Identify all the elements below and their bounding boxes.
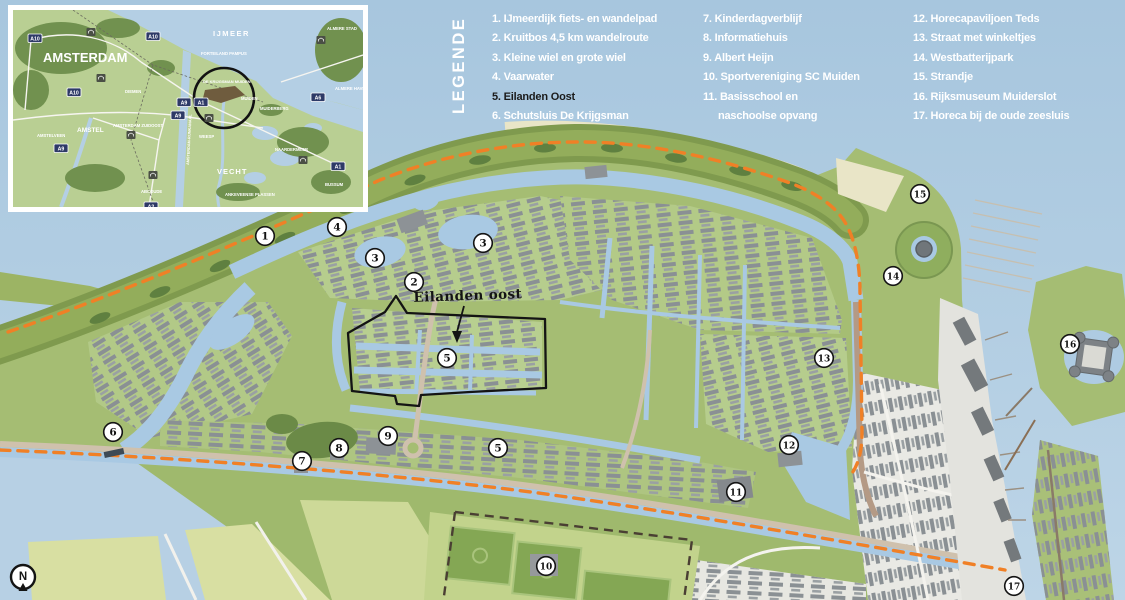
- legend-item-16: 16. Rijksmuseum Muiderslot: [913, 88, 1069, 107]
- fort-icon: [317, 36, 326, 44]
- inset-place-label: IJMEER: [213, 29, 250, 38]
- marker-number: 5: [443, 353, 450, 365]
- legend-item-4: 4. Vaarwater: [492, 68, 657, 87]
- map-marker-17[interactable]: 17: [1005, 577, 1024, 596]
- map-marker-1[interactable]: 1: [256, 227, 275, 246]
- map-marker-15[interactable]: 15: [911, 185, 930, 204]
- inset-map: A10A10A10A9A9A2A1A6A9A1 AMSTERDAMIJMEERV…: [8, 5, 368, 212]
- fort-icon: [97, 74, 106, 82]
- marker-number: 6: [109, 427, 116, 439]
- inset-place-label: DE KRIJGSMAN MUIDEN: [203, 79, 251, 84]
- inset-place-label: AMSTERDAM ZUIDOOST: [113, 123, 163, 128]
- fort-icon: [205, 114, 214, 122]
- inset-place-label: BUSSUM: [325, 182, 344, 187]
- inset-place-label: WEESP: [199, 134, 214, 139]
- map-marker-5[interactable]: 5: [489, 439, 508, 458]
- legend-item-6: 6. Schutsluis De Krijgsman: [492, 107, 657, 126]
- marker-number: 2: [410, 277, 417, 289]
- map-marker-14[interactable]: 14: [884, 267, 903, 286]
- inset-road-shield: A9: [54, 144, 68, 153]
- svg-text:A6: A6: [315, 95, 322, 101]
- map-marker-3[interactable]: 3: [366, 249, 385, 268]
- legend-item-9: 9. Albert Heijn: [703, 49, 860, 68]
- map-marker-9[interactable]: 9: [379, 427, 398, 446]
- inset-place-label: AMSTERDAM: [43, 50, 128, 65]
- marker-number: 9: [384, 431, 391, 443]
- inset-place-label: MUIDEN: [241, 96, 258, 101]
- legend-column-1: 1. IJmeerdijk fiets- en wandelpad 2. Kru…: [492, 10, 657, 126]
- legend-column-3: 12. Horecapaviljoen Teds 13. Straat met …: [913, 10, 1069, 126]
- inset-place-label: AMSTEL: [77, 127, 104, 134]
- map-marker-16[interactable]: 16: [1061, 335, 1080, 354]
- marker-number: 14: [887, 273, 900, 283]
- legend-item-8: 8. Informatiehuis: [703, 29, 860, 48]
- svg-text:A10: A10: [30, 36, 40, 42]
- map-marker-2[interactable]: 2: [405, 273, 424, 292]
- marker-number: 17: [1008, 583, 1021, 593]
- map-marker-7[interactable]: 7: [293, 452, 312, 471]
- inset-road-shield: A10: [28, 34, 42, 43]
- kruitbos: [266, 414, 298, 434]
- legend-item-14: 14. Westbatterijpark: [913, 49, 1069, 68]
- legend-item-7: 7. Kinderdagverblijf: [703, 10, 860, 29]
- svg-text:A9: A9: [175, 113, 182, 119]
- legend-item-3: 3. Kleine wiel en grote wiel: [492, 49, 657, 68]
- inset-road-shield: A1: [194, 98, 208, 107]
- marker-number: 8: [335, 443, 342, 455]
- legend-item-5-highlighted: 5. Eilanden Oost: [492, 88, 657, 107]
- inset-place-label: ABCOUDE: [141, 189, 162, 194]
- svg-text:A9: A9: [181, 100, 188, 106]
- legend-item-1: 1. IJmeerdijk fiets- en wandelpad: [492, 10, 657, 29]
- svg-text:A1: A1: [198, 100, 205, 106]
- inset-road-shield: A10: [67, 88, 81, 97]
- legend-item-2: 2. Kruitbos 4,5 km wandelroute: [492, 29, 657, 48]
- map-marker-11[interactable]: 11: [727, 483, 746, 502]
- inset-road-shield: A6: [311, 93, 325, 102]
- legend-title: LEGENDE: [450, 12, 469, 114]
- fort-icon: [127, 131, 136, 139]
- inset-place-label: DIEMEN: [125, 89, 141, 94]
- marker-number: 5: [494, 443, 501, 455]
- inset-road-shield: A1: [331, 162, 345, 171]
- inset-place-label: FORTEILAND PAMPUS: [201, 51, 247, 56]
- legend-item-10: 10. Sportvereniging SC Muiden: [703, 68, 860, 87]
- marker-number: 15: [914, 191, 927, 201]
- svg-text:A10: A10: [148, 34, 158, 40]
- fort-icon: [299, 156, 308, 164]
- legend-item-11: 11. Basisschool en: [703, 88, 860, 107]
- marker-number: 11: [730, 489, 743, 499]
- inset-place-label: NAARDERMEER: [275, 147, 308, 152]
- map-marker-8[interactable]: 8: [330, 439, 349, 458]
- svg-text:A10: A10: [69, 90, 79, 96]
- marker-number: 3: [479, 238, 486, 250]
- legend-item-11-cont: naschoolse opvang: [703, 107, 860, 126]
- krijgsman-map-page: Eilanden oost N 143325678951112101314151…: [0, 0, 1125, 600]
- map-marker-3[interactable]: 3: [474, 234, 493, 253]
- fort-icon: [87, 28, 96, 36]
- inset-place-label: VECHT: [217, 167, 247, 176]
- polder-field: [28, 536, 166, 600]
- svg-text:A9: A9: [58, 146, 65, 152]
- svg-text:A1: A1: [335, 164, 342, 170]
- inset-road-shield: A10: [146, 32, 160, 41]
- inset-road-shield: A9: [171, 111, 185, 120]
- legend-item-17: 17. Horeca bij de oude zeesluis: [913, 107, 1069, 126]
- map-marker-4[interactable]: 4: [328, 218, 347, 237]
- compass: N: [11, 565, 35, 591]
- marker-number: 10: [540, 563, 553, 573]
- map-marker-6[interactable]: 6: [104, 423, 123, 442]
- map-marker-10[interactable]: 10: [537, 557, 556, 576]
- legend-item-12: 12. Horecapaviljoen Teds: [913, 10, 1069, 29]
- marker-number: 13: [818, 355, 831, 365]
- marker-number: 7: [298, 456, 305, 468]
- legend-item-13: 13. Straat met winkeltjes: [913, 29, 1069, 48]
- fort-icon: [149, 171, 158, 179]
- map-marker-13[interactable]: 13: [815, 349, 834, 368]
- compass-n-label: N: [19, 571, 27, 583]
- marker-number: 3: [371, 253, 378, 265]
- marker-number: 4: [333, 222, 340, 234]
- inset-place-label: AMSTELVEEN: [37, 133, 65, 138]
- westbatterij-tower: [916, 241, 932, 257]
- legend-column-2: 7. Kinderdagverblijf 8. Informatiehuis 9…: [703, 10, 860, 126]
- marker-number: 1: [261, 231, 268, 243]
- legend-item-15: 15. Strandje: [913, 68, 1069, 87]
- marker-number: 12: [783, 442, 796, 452]
- inset-road-shield: A9: [177, 98, 191, 107]
- roundabout: [405, 440, 421, 456]
- inset-place-label: MUIDERBERG: [260, 106, 289, 111]
- inset-place-label: ANKEVEENSE PLASSEN: [225, 192, 275, 197]
- inset-place-label: ALMERE STAD: [327, 26, 357, 31]
- map-marker-12[interactable]: 12: [780, 436, 799, 455]
- marker-number: 16: [1064, 341, 1077, 351]
- map-marker-5[interactable]: 5: [438, 349, 457, 368]
